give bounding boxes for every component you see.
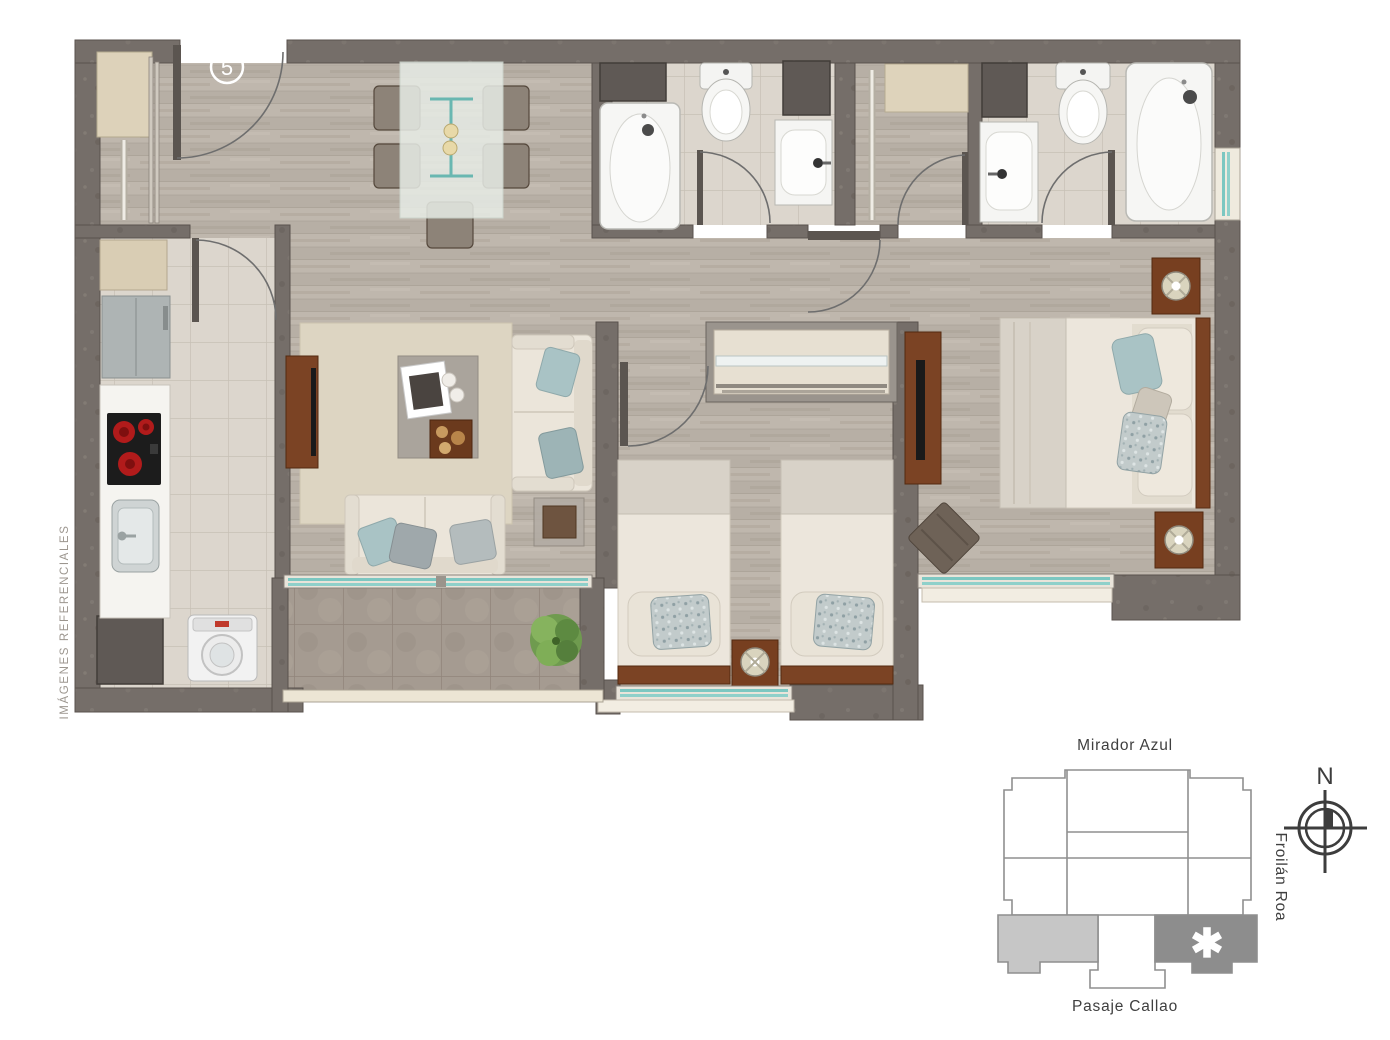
wall-living-bedroom2 (596, 322, 618, 588)
master-window-frame (918, 574, 1114, 588)
vanity-2-faucet (997, 169, 1007, 179)
side-table (534, 498, 584, 546)
bedroom2-nightstand (732, 640, 778, 686)
single-bed-2 (781, 460, 893, 684)
master-door-leaf (808, 231, 880, 240)
master-window (918, 574, 1114, 602)
toilet-2 (1056, 63, 1110, 144)
bathtub-2-control (1182, 80, 1187, 85)
bed2-headboard (781, 666, 893, 684)
bathroom2-door-leaf (1108, 150, 1115, 225)
street-label-bottom: Pasaje Callao (1072, 998, 1178, 1015)
balcony-slider (284, 575, 592, 588)
toilet-1-seat (710, 90, 742, 134)
coffee-table (398, 356, 478, 458)
master-bed (1000, 318, 1210, 508)
entry-closet-slider-2 (155, 62, 159, 223)
bathroom2-window-glass-1 (1222, 152, 1225, 216)
compass-needle (1325, 810, 1333, 828)
balcony-plant (530, 614, 582, 666)
building-outline (1004, 770, 1251, 915)
street-label-right: Froilán Roa (1272, 833, 1289, 922)
bathroom2-window-glass-2 (1227, 152, 1230, 216)
plant-center (552, 637, 560, 645)
coffee-table-tray (430, 420, 472, 458)
master-nightstand-bottom (1155, 512, 1203, 568)
floor-plan: 5 (75, 40, 1240, 720)
bathtub-1 (600, 103, 680, 229)
toilet-1 (700, 63, 752, 141)
floorplan-canvas: 5 (0, 0, 1390, 1040)
fridge-handle (163, 306, 168, 330)
walkin-door-leaf (962, 152, 968, 225)
burner-2-inner (143, 424, 150, 431)
wall-corridor-4 (966, 225, 1042, 238)
bathtub-2 (1126, 63, 1212, 221)
wall-corridor-5 (1112, 225, 1215, 238)
tray-item-1 (436, 426, 448, 438)
master-blanket-fold (1000, 318, 1066, 508)
bedroom2-door-leaf (620, 362, 628, 446)
coffee-table-dish-1 (442, 373, 456, 387)
bed1-headboard (618, 666, 730, 684)
wall-right-lower (1215, 217, 1240, 620)
lamp-top-bulb (1172, 282, 1181, 291)
bedroom2-window-glass-1 (620, 689, 788, 692)
wall-corridor-3 (880, 225, 898, 238)
tray-item-3 (439, 442, 451, 454)
bed2-blanket-fold (781, 460, 893, 514)
book-image (409, 372, 443, 410)
master-nightstand-top (1152, 258, 1200, 314)
wall-master-bottom (1112, 575, 1240, 620)
bathtub-1-control (642, 114, 647, 119)
street-label-top: Mirador Azul (1077, 737, 1173, 754)
shaft-1 (600, 63, 666, 101)
bedroom2-window (598, 686, 794, 712)
bedroom2-window-glass-2 (620, 694, 788, 697)
master-window-glass-1 (922, 577, 1110, 580)
bathtub-2-faucet (1183, 90, 1197, 104)
sofa-pillow-gray-1 (388, 522, 437, 570)
master-tv (916, 360, 925, 460)
vanity-2 (980, 122, 1038, 222)
shaft-2 (783, 61, 830, 115)
tv-living (311, 368, 316, 456)
site-locator: ✱ Mirador Azul Pasaje Callao Froilán Roa… (998, 737, 1367, 1015)
pendant-light-1 (444, 124, 458, 138)
wall-top (287, 40, 1240, 63)
cooktop-controls (150, 444, 158, 454)
bedroom2-closet (706, 322, 897, 402)
coffee-table-dish-2 (450, 388, 464, 402)
entry-closet-slider-1 (149, 57, 153, 223)
wall-bathroom1-walkin (835, 63, 855, 225)
vanity-1-faucet (813, 158, 823, 168)
kitchen-utility-closet (97, 616, 163, 684)
kitchen-sink (112, 500, 159, 572)
wall-entry-kitchen (75, 225, 190, 238)
kitchen-door-leaf (192, 238, 199, 322)
watermark-text: IMÁGENES REFERENCIALES (58, 525, 71, 720)
toilet-2-seat (1067, 91, 1099, 137)
wall-corridor-2 (767, 225, 808, 238)
floorplan-page: 5 (0, 0, 1390, 1040)
vanity-2-basin (986, 132, 1032, 210)
bathtub-1-basin (610, 114, 670, 222)
sofa (345, 495, 505, 575)
master-pillow-floral (1116, 411, 1168, 475)
bathtub-1-faucet (642, 124, 654, 136)
building-entrance-tab (1090, 915, 1165, 988)
unit-number: 5 (221, 55, 233, 80)
tray-item-2 (451, 431, 465, 445)
bed2-pillow-floral (813, 594, 875, 651)
master-window-sill (922, 588, 1112, 602)
balcony-railing (283, 690, 603, 702)
bedroom2-window-sill (598, 700, 794, 712)
bathroom1-door-leaf (697, 150, 703, 225)
bed1-pillow-floral (650, 594, 711, 650)
washer-display (215, 621, 229, 627)
shaft-3 (982, 63, 1027, 117)
closet-rod (716, 356, 887, 366)
lamp-bottom-bulb (1175, 536, 1184, 545)
toilet-2-button (1080, 69, 1086, 75)
bathroom2-window (1215, 148, 1240, 220)
vanity-1 (775, 120, 832, 205)
plant-foliage-5 (556, 640, 578, 662)
wall-left (75, 63, 100, 712)
kitchen-counter-wood (100, 240, 167, 290)
unit-marker-asterisk: ✱ (1190, 922, 1224, 966)
loveseat (512, 335, 592, 491)
closet-slider-door (722, 390, 885, 393)
cooktop (107, 413, 161, 485)
unit-neighbor (998, 915, 1098, 973)
master-window-glass-2 (922, 582, 1110, 585)
closet-slider-track (716, 384, 887, 388)
bed1-blanket-fold (618, 460, 730, 514)
loveseat-armrest-top (512, 335, 574, 349)
single-bed-1 (618, 460, 730, 684)
coffee-table-book (401, 361, 452, 419)
entry-door-leaf (173, 45, 181, 160)
loveseat-armrest-bottom (512, 477, 574, 491)
burner-3-inner (125, 459, 135, 469)
compass: N (1284, 763, 1367, 873)
balcony-pillar-right (580, 578, 604, 702)
toilet-1-button (723, 69, 729, 75)
walkin-shelf (885, 64, 968, 112)
entry-closet-shelf (97, 52, 152, 137)
washing-machine (188, 615, 257, 681)
slider-handle (436, 576, 446, 587)
wall-kitchen-bottom (75, 688, 303, 712)
side-table-inner (543, 506, 576, 538)
burner-1-inner (119, 427, 129, 437)
washer-drum (210, 643, 234, 667)
compass-north-label: N (1316, 763, 1333, 790)
sofa-pillow-gray-2 (449, 519, 497, 566)
pendant-light-2 (443, 141, 457, 155)
bedroom2-window-frame (616, 686, 792, 700)
corridor-floor (290, 238, 918, 322)
master-headboard (1196, 318, 1210, 508)
wall-right-upper (1215, 63, 1240, 150)
